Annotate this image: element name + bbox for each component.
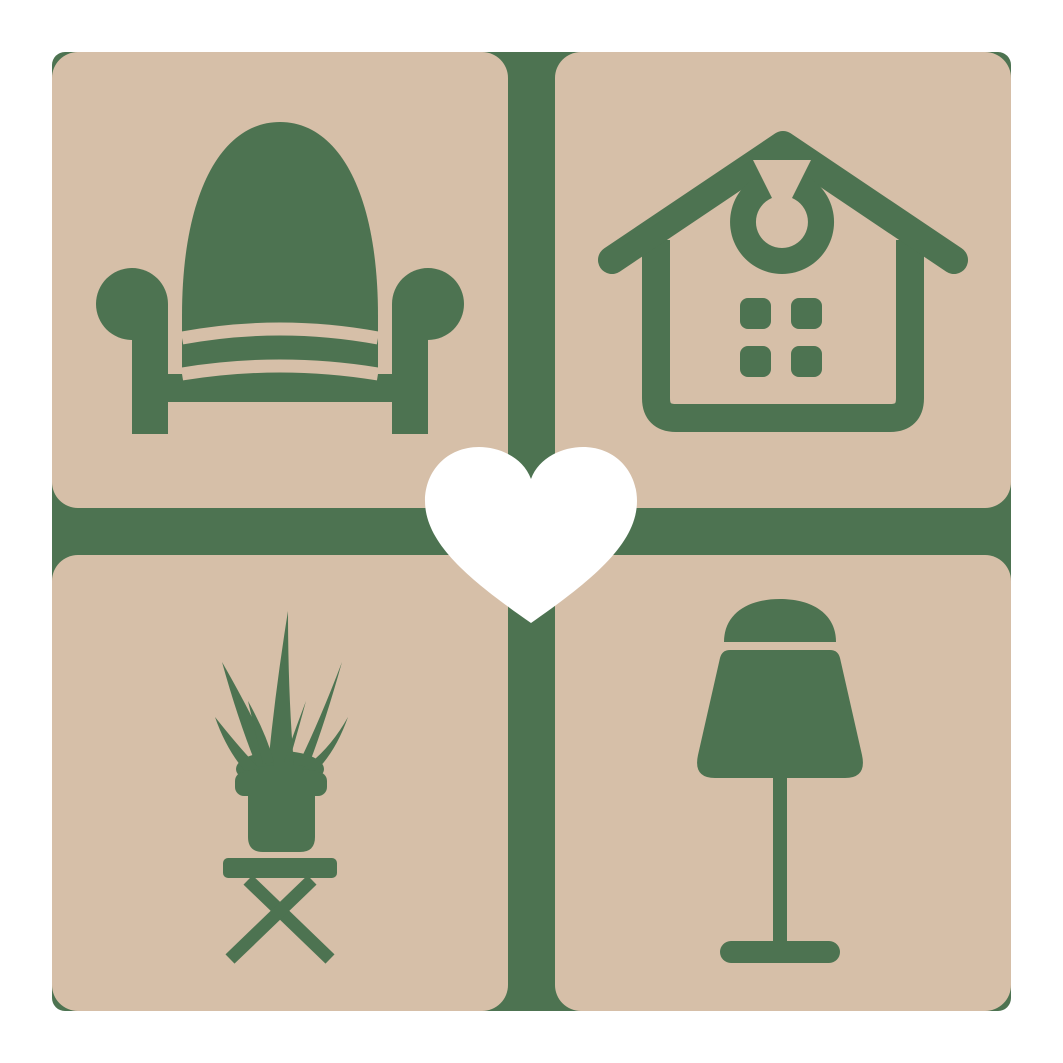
heart-shape bbox=[425, 447, 637, 623]
tile-house bbox=[555, 52, 1011, 508]
house-window-pane bbox=[791, 346, 822, 377]
stool-top bbox=[223, 858, 337, 878]
lamp-cap bbox=[724, 599, 836, 642]
house-window-pane bbox=[740, 346, 771, 377]
heart-icon bbox=[423, 445, 639, 625]
plant-leaf bbox=[268, 611, 294, 765]
armchair-icon bbox=[52, 52, 508, 508]
armchair-rail bbox=[164, 374, 396, 402]
plant-pot-body bbox=[248, 796, 315, 852]
house-icon bbox=[555, 52, 1011, 508]
armchair-right-leg bbox=[392, 304, 428, 434]
armchair-left-leg bbox=[132, 304, 168, 434]
stool-leg bbox=[230, 880, 312, 959]
logo-mark bbox=[52, 52, 1011, 1011]
plant-pot-rim bbox=[235, 772, 327, 796]
plant-leaf bbox=[298, 662, 342, 767]
house-window-pane bbox=[791, 298, 822, 329]
lamp-stem bbox=[773, 778, 787, 946]
stool-leg bbox=[248, 880, 330, 959]
tile-armchair bbox=[52, 52, 508, 508]
house-window-pane bbox=[740, 298, 771, 329]
lamp-base bbox=[720, 941, 840, 963]
lamp-shade bbox=[697, 650, 863, 778]
